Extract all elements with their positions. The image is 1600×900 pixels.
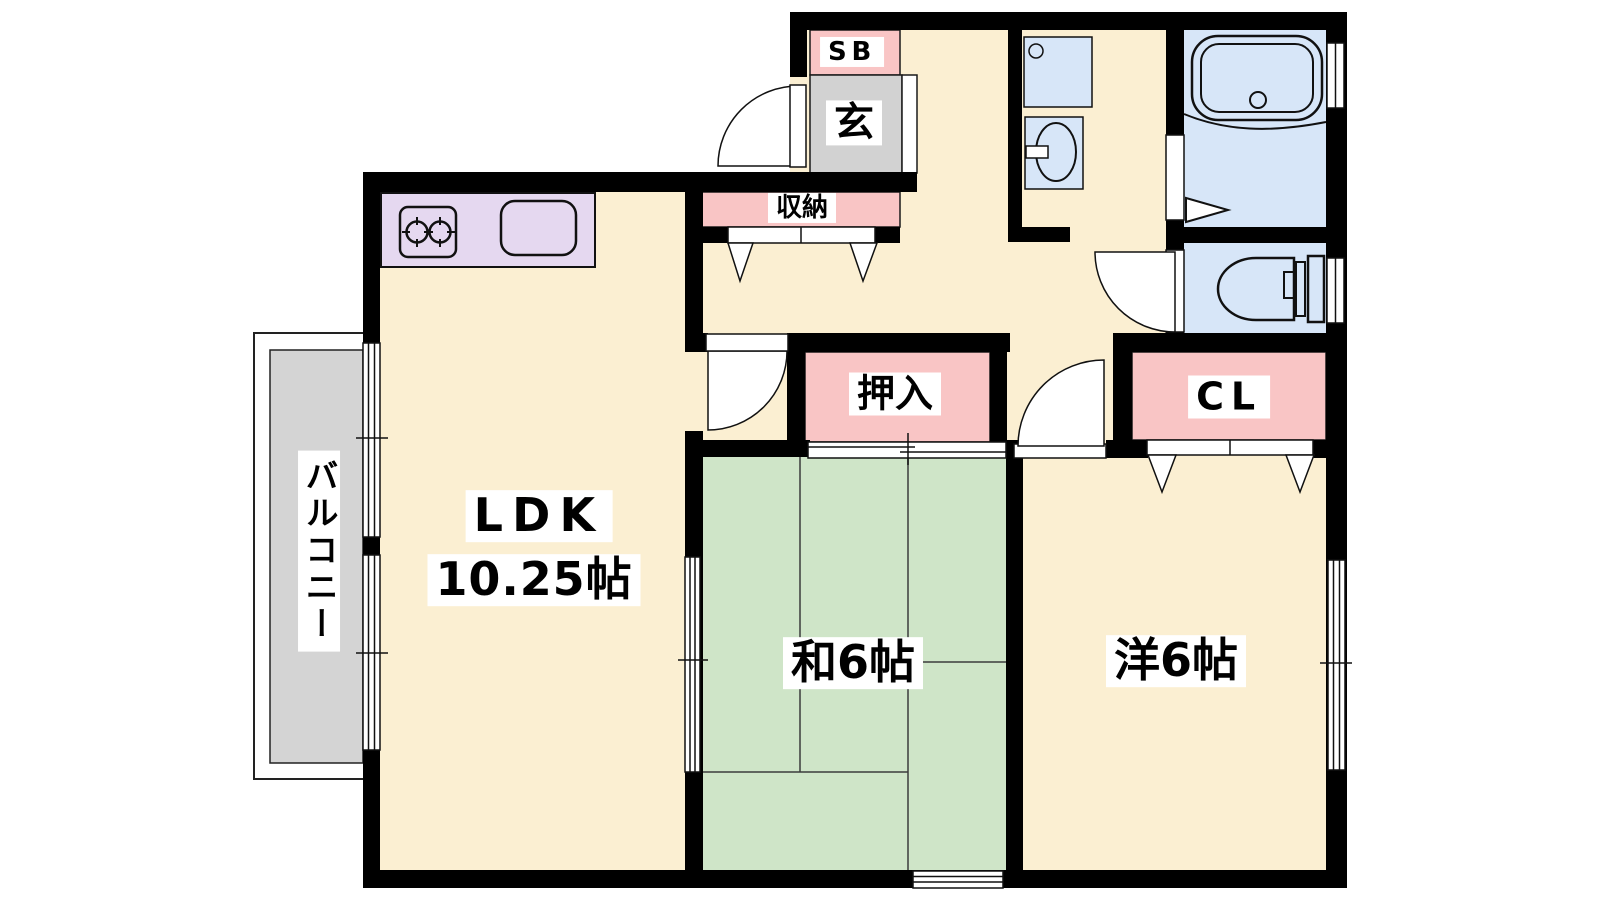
wall-top <box>790 12 1347 30</box>
wall-washroom-stub <box>1008 227 1070 242</box>
wall-oshiire-left <box>787 352 805 442</box>
wall-ldk-top <box>363 172 917 192</box>
room-label-ldk-size: 10.25帖 <box>427 554 640 606</box>
window-toilet-east <box>1327 258 1344 323</box>
wall-oshiire-right <box>990 352 1007 443</box>
genkan-step <box>902 75 917 173</box>
window-washitsu-south <box>913 871 1003 888</box>
floorplan: LDK 10.25帖 和6帖 洋6帖 押入 CL 収納 SB 玄 バルコニー <box>0 0 1600 900</box>
kitchen <box>381 193 595 267</box>
wall-cl-jamb-right <box>1313 440 1326 458</box>
wall-storage-jamb-left <box>702 227 728 243</box>
wall-bottom <box>363 870 1347 888</box>
wall-hall-south-west <box>685 333 708 352</box>
room-label-genkan: 玄 <box>826 100 882 145</box>
room-label-youshitsu: 洋6帖 <box>1106 635 1246 687</box>
room-label-oshiire: 押入 <box>849 372 941 415</box>
entrance-door <box>718 85 806 167</box>
wall-entrance-jamb <box>790 30 807 77</box>
wall-washroom-west <box>1008 28 1022 242</box>
window-bathroom-east <box>1327 43 1344 108</box>
washing-machine-pan <box>1024 37 1092 107</box>
wall-storage-jamb-right <box>875 227 900 243</box>
wall-cl-jamb-left <box>1132 440 1148 458</box>
room-label-washitsu: 和6帖 <box>783 637 923 689</box>
washbasin-faucet <box>1026 146 1048 158</box>
wall-oshiire-top <box>787 333 1010 352</box>
room-label-balcony: バルコニー <box>298 451 340 652</box>
room-label-closet: CL <box>1188 375 1270 418</box>
wall-bath-toilet-divider <box>1184 227 1326 243</box>
wall-ldk-east <box>685 192 703 352</box>
floorplan-drawing <box>0 0 1600 900</box>
wall-washitsu-east <box>1006 440 1023 872</box>
room-label-storage: 収納 <box>768 193 836 223</box>
room-label-shoebox: SB <box>820 37 884 67</box>
room-label-ldk: LDK <box>466 490 613 542</box>
wall-washitsu-topleft <box>685 440 810 457</box>
wall-hall-south-east <box>1113 333 1330 352</box>
